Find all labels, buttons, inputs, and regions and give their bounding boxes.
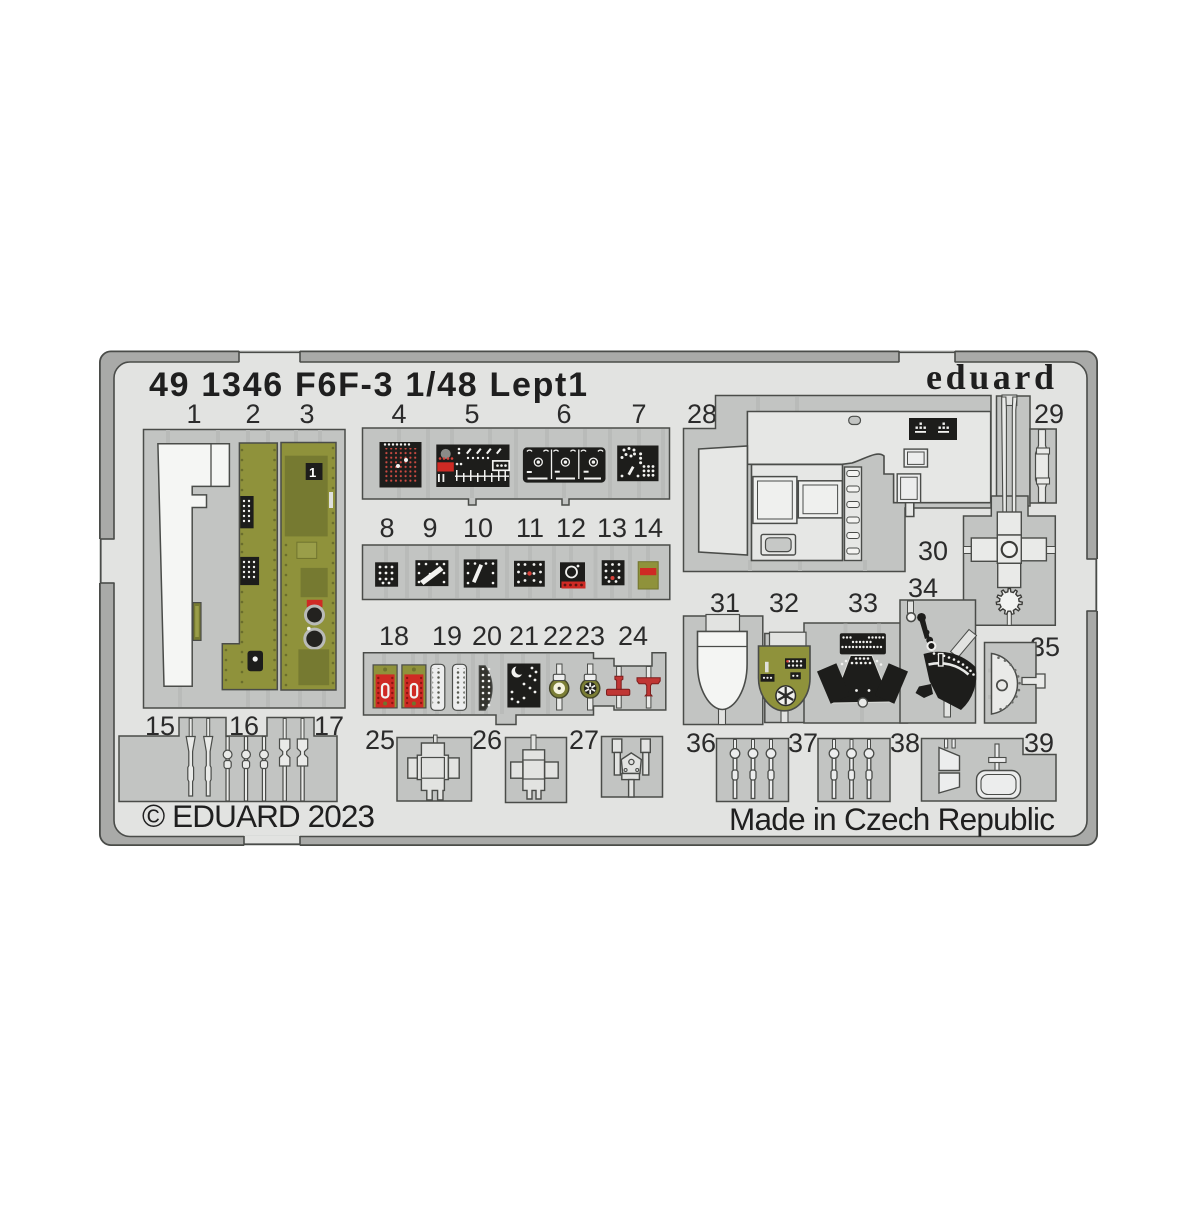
svg-text:9: 9 bbox=[422, 513, 437, 543]
svg-text:38: 38 bbox=[890, 728, 920, 758]
svg-text:11: 11 bbox=[516, 513, 544, 543]
svg-text:23: 23 bbox=[575, 621, 605, 651]
svg-text:21: 21 bbox=[509, 621, 539, 651]
svg-text:19: 19 bbox=[432, 621, 462, 651]
svg-text:49 1346 F6F-3 1/48 Lept1: 49 1346 F6F-3 1/48 Lept1 bbox=[149, 366, 587, 404]
svg-text:4: 4 bbox=[391, 399, 406, 429]
svg-text:13: 13 bbox=[597, 513, 627, 543]
svg-text:1: 1 bbox=[309, 465, 316, 480]
svg-text:6: 6 bbox=[556, 399, 571, 429]
svg-text:28: 28 bbox=[687, 399, 717, 429]
svg-text:26: 26 bbox=[472, 725, 502, 755]
svg-text:Made in Czech Republic: Made in Czech Republic bbox=[729, 801, 1055, 837]
svg-text:25: 25 bbox=[365, 725, 395, 755]
svg-text:39: 39 bbox=[1024, 728, 1054, 758]
svg-text:20: 20 bbox=[472, 621, 502, 651]
svg-text:29: 29 bbox=[1034, 399, 1064, 429]
svg-text:33: 33 bbox=[848, 588, 878, 618]
svg-text:1: 1 bbox=[186, 399, 201, 429]
svg-text:37: 37 bbox=[788, 728, 818, 758]
svg-text:34: 34 bbox=[908, 573, 938, 603]
svg-text:3: 3 bbox=[299, 399, 314, 429]
svg-text:10: 10 bbox=[463, 513, 493, 543]
svg-text:18: 18 bbox=[379, 621, 409, 651]
svg-text:8: 8 bbox=[379, 513, 394, 543]
svg-text:12: 12 bbox=[556, 513, 586, 543]
svg-text:36: 36 bbox=[686, 728, 716, 758]
svg-text:32: 32 bbox=[769, 588, 799, 618]
svg-text:22: 22 bbox=[543, 621, 573, 651]
svg-text:5: 5 bbox=[464, 399, 479, 429]
svg-text:31: 31 bbox=[710, 588, 740, 618]
svg-text:27: 27 bbox=[569, 725, 599, 755]
svg-text:24: 24 bbox=[618, 621, 648, 651]
svg-text:30: 30 bbox=[918, 536, 948, 566]
svg-text:© EDUARD 2023: © EDUARD 2023 bbox=[142, 798, 375, 834]
svg-text:14: 14 bbox=[633, 513, 663, 543]
svg-text:2: 2 bbox=[245, 399, 260, 429]
svg-text:7: 7 bbox=[631, 399, 646, 429]
